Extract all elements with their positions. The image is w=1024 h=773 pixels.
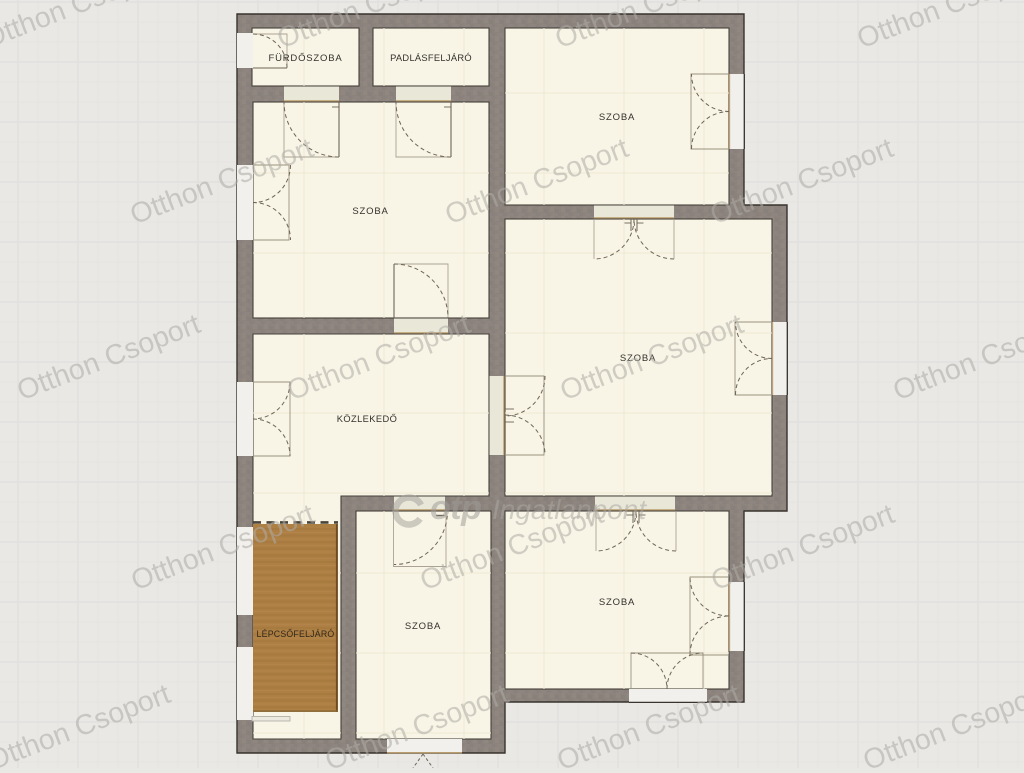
svg-text:FÜRDŐSZOBA: FÜRDŐSZOBA (269, 53, 343, 64)
svg-text:SZOBA: SZOBA (352, 206, 388, 217)
svg-text:PADLÁSFELJÁRÓ: PADLÁSFELJÁRÓ (390, 53, 472, 63)
svg-text:SZOBA: SZOBA (599, 112, 635, 123)
svg-text:LÉPCSŐFELJÁRÓ: LÉPCSŐFELJÁRÓ (257, 629, 335, 639)
svg-text:SZOBA: SZOBA (599, 597, 635, 608)
svg-text:KÖZLEKEDŐ: KÖZLEKEDŐ (337, 414, 397, 424)
svg-text:otp: otp (430, 489, 481, 527)
svg-text:SZOBA: SZOBA (405, 621, 441, 632)
